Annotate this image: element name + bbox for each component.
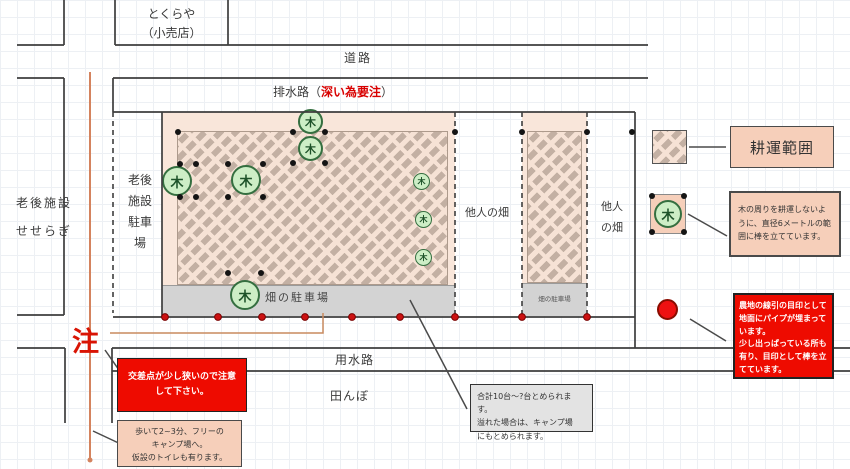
drain-label-suffix: ） — [381, 85, 393, 99]
legend-hatch-swatch — [652, 130, 687, 164]
facility-parking-label: 老後 施設 駐車 場 — [123, 170, 157, 254]
tree-marker-small: 木 — [415, 211, 432, 228]
tree-marker-small: 木 — [415, 249, 432, 266]
drain-warning-text: 深い為要注 — [321, 85, 381, 99]
road-label: 道路 — [113, 50, 603, 66]
others-field-label-a: 他人の畑 — [458, 206, 516, 221]
drain-label: 排水路（深い為要注） — [113, 84, 553, 100]
tree-marker: 木 — [298, 136, 323, 161]
field-map: 木 木 木 木 木 木 木 木 木 — [0, 0, 850, 469]
tree-marker: 木 — [231, 165, 261, 195]
legend-tilling-label-box: 耕運範囲 — [730, 126, 834, 168]
legend-tree-note-box: 木の周りを耕運しないように、直径6メートルの範囲に棒を立てています。 — [729, 191, 841, 257]
field-parking-label: 畑の駐車場 — [265, 291, 330, 306]
tilling-area-second — [527, 131, 582, 283]
capacity-info-box: 合計10台～?台とめられます。 溢れた場合は、キャンプ場 にもとめられます。 — [470, 384, 593, 432]
tree-marker: 木 — [162, 166, 192, 196]
tree-marker-small: 木 — [413, 173, 430, 190]
drain-label-prefix: 排水路（ — [273, 85, 321, 99]
legend-tilling-label: 耕運範囲 — [750, 137, 814, 158]
tree-marker: 木 — [230, 280, 260, 310]
waterway-label: 用水路 — [335, 352, 374, 368]
second-parking-label: 畑の駐車場 — [522, 295, 587, 304]
store-label: とくらや （小売店） — [115, 5, 228, 42]
legend-pipe-marker — [657, 299, 678, 320]
facility-label: 老後施設 せせらぎ — [16, 190, 72, 245]
others-field-label-b: 他人 の畑 — [593, 197, 631, 239]
crossing-warning-box: 交差点が少し狭いので注意 して下さい。 — [117, 358, 247, 412]
caution-mark: 注 — [72, 320, 99, 359]
legend-tree-icon: 木 — [654, 200, 682, 228]
rice-field-label: 田んぼ — [330, 388, 369, 404]
camp-info-box: 歩いて2~3分、フリーの キャンプ場へ。 仮設のトイレも有ります。 — [117, 420, 242, 467]
legend-pipe-note-box: 農地の線引の目印として地面にパイプが埋まっています。 少し出っぱっている所も有り… — [733, 293, 834, 379]
tree-marker: 木 — [298, 109, 323, 134]
